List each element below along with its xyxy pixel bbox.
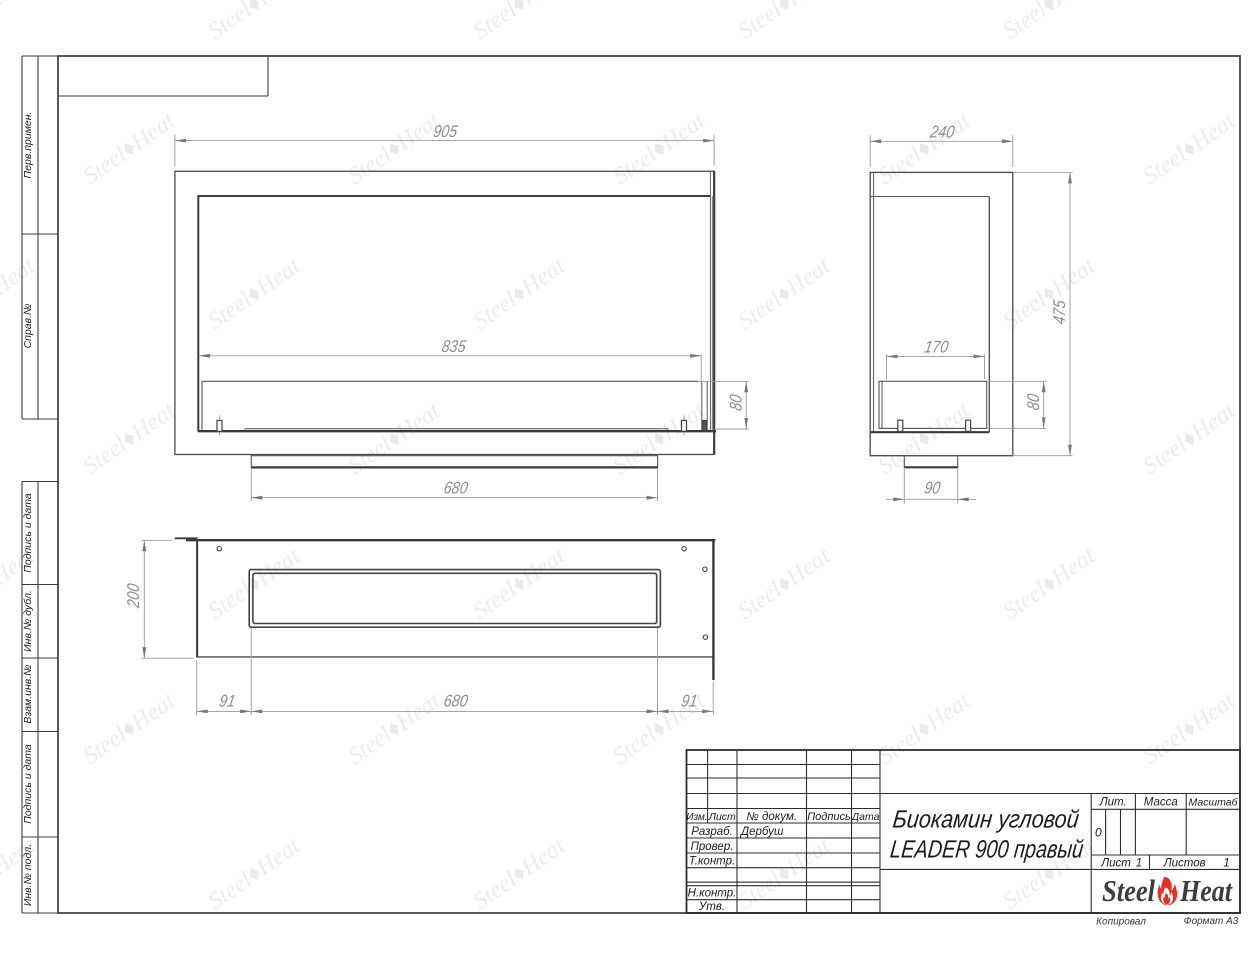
svg-text:Инв.№ подл.: Инв.№ подл. bbox=[22, 844, 34, 906]
svg-text:91: 91 bbox=[218, 691, 237, 710]
svg-text:905: 905 bbox=[432, 122, 459, 141]
svg-text:№ докум.: № докум. bbox=[746, 811, 797, 823]
svg-text:200: 200 bbox=[124, 582, 143, 610]
svg-text:Копировал: Копировал bbox=[1096, 917, 1146, 928]
svg-text:Лист: Лист bbox=[708, 811, 736, 823]
svg-text:Лит.: Лит. bbox=[1099, 797, 1127, 809]
svg-text:Формат А3: Формат А3 bbox=[1184, 916, 1239, 927]
svg-text:Лист: Лист bbox=[1100, 857, 1131, 869]
svg-text:475: 475 bbox=[1050, 298, 1069, 325]
svg-text:Steel: Steel bbox=[1102, 873, 1155, 908]
svg-text:Подпись: Подпись bbox=[807, 811, 851, 823]
svg-text:Справ.№: Справ.№ bbox=[22, 304, 34, 349]
svg-text:Утв.: Утв. bbox=[698, 901, 725, 913]
svg-text:Масса: Масса bbox=[1144, 797, 1178, 809]
svg-text:Т.контр.: Т.контр. bbox=[689, 856, 735, 868]
svg-text:Подпись и дата: Подпись и дата bbox=[22, 744, 34, 824]
svg-text:680: 680 bbox=[443, 479, 470, 498]
svg-text:91: 91 bbox=[680, 691, 699, 710]
svg-text:1: 1 bbox=[1223, 857, 1229, 869]
svg-text:Дербуш: Дербуш bbox=[739, 826, 784, 838]
svg-text:Н.контр.: Н.контр. bbox=[688, 888, 737, 900]
svg-text:Инв.№ дубл.: Инв.№ дубл. bbox=[22, 590, 34, 652]
svg-text:0: 0 bbox=[1095, 826, 1102, 840]
svg-text:240: 240 bbox=[928, 123, 956, 142]
svg-text:Взам.инв.№: Взам.инв.№ bbox=[22, 664, 34, 723]
svg-text:Масштаб: Масштаб bbox=[1188, 797, 1238, 809]
svg-text:Дата: Дата bbox=[851, 811, 880, 823]
svg-text:1: 1 bbox=[1136, 857, 1142, 869]
svg-text:Листов: Листов bbox=[1163, 857, 1206, 869]
svg-text:Heat: Heat bbox=[1179, 873, 1233, 908]
svg-text:Подпись и дата: Подпись и дата bbox=[22, 493, 34, 573]
svg-text:Провер.: Провер. bbox=[691, 841, 734, 853]
svg-text:LEADER 900 правый: LEADER 900 правый bbox=[889, 836, 1085, 864]
svg-text:Биокамин угловой: Биокамин угловой bbox=[891, 806, 1080, 834]
svg-text:835: 835 bbox=[441, 337, 468, 356]
svg-text:Изм.: Изм. bbox=[686, 812, 707, 823]
svg-text:Перв.примен.: Перв.примен. bbox=[22, 112, 34, 179]
svg-text:170: 170 bbox=[923, 337, 950, 356]
svg-text:680: 680 bbox=[443, 691, 470, 710]
svg-text:Разраб.: Разраб. bbox=[691, 826, 733, 838]
